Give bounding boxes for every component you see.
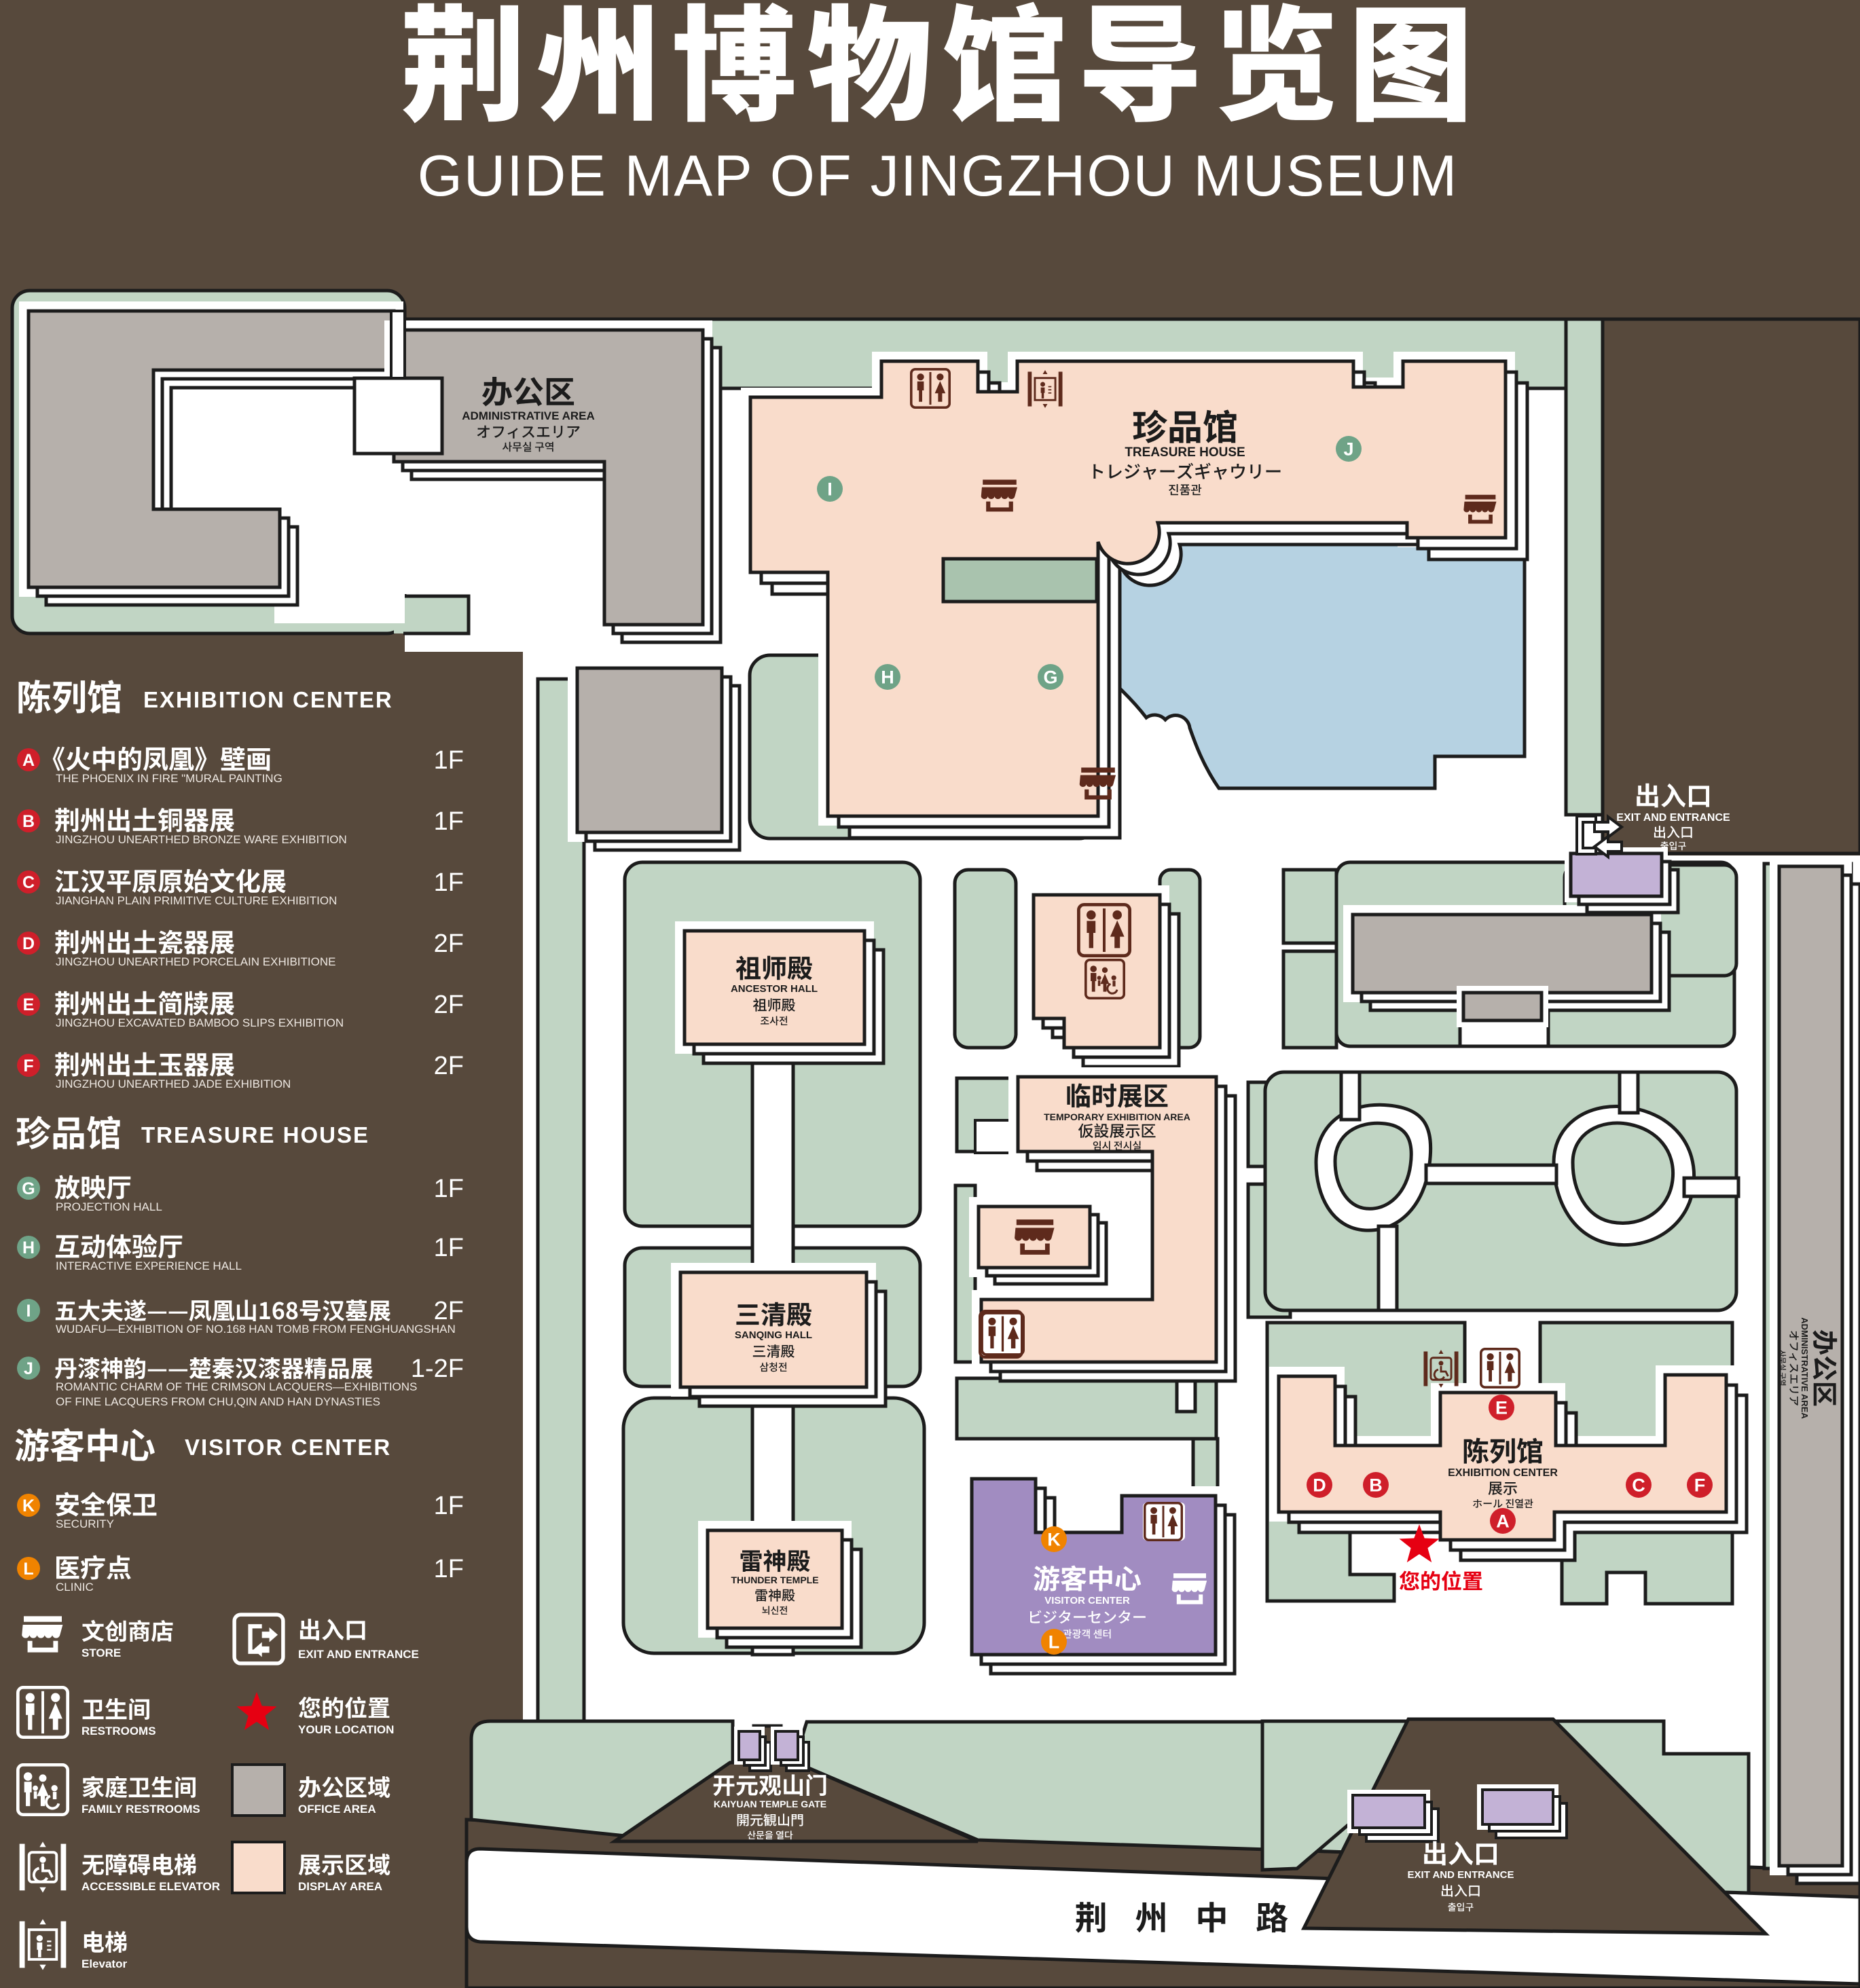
svg-text:1F: 1F [434,1234,464,1262]
svg-text:K: K [1047,1529,1061,1549]
svg-text:Elevator: Elevator [81,1957,127,1970]
svg-text:ANCESTOR HALL: ANCESTOR HALL [731,983,818,995]
svg-text:1F: 1F [434,1555,464,1583]
svg-text:TEMPORARY EXHIBITION AREA: TEMPORARY EXHIBITION AREA [1044,1111,1190,1122]
svg-text:2F: 2F [434,929,464,958]
svg-text:EXHIBITION CENTER: EXHIBITION CENTER [1448,1467,1558,1479]
svg-text:ACCESSIBLE ELEVATOR: ACCESSIBLE ELEVATOR [81,1880,220,1893]
svg-text:CLINIC: CLINIC [56,1581,94,1594]
svg-text:RESTROOMS: RESTROOMS [81,1725,156,1737]
svg-text:E: E [1495,1397,1508,1418]
svg-text:VISITOR CENTER: VISITOR CENTER [185,1435,391,1460]
svg-text:1-2F: 1-2F [411,1355,464,1383]
svg-text:J: J [24,1359,33,1378]
svg-text:THE PHOENIX IN FIRE "MURAL PAI: THE PHOENIX IN FIRE "MURAL PAINTING [56,772,282,785]
svg-text:E: E [23,995,35,1014]
svg-text:J: J [1343,439,1353,459]
svg-text:EXIT AND ENTRANCE: EXIT AND ENTRANCE [1408,1869,1514,1881]
svg-text:H: H [881,667,894,687]
svg-text:K: K [22,1496,35,1515]
svg-text:F: F [1694,1475,1706,1495]
svg-text:OF FINE LACQUERS FROM CHU,QIN: OF FINE LACQUERS FROM CHU,QIN AND HAN DY… [56,1395,380,1408]
svg-text:JINGZHOU UNEARTHED BRONZE WARE: JINGZHOU UNEARTHED BRONZE WARE EXHIBITIO… [56,833,347,846]
svg-text:1F: 1F [434,746,464,775]
svg-text:H: H [22,1238,35,1257]
svg-text:F: F [23,1056,33,1075]
svg-text:YOUR LOCATION: YOUR LOCATION [298,1723,394,1736]
svg-text:TREASURE HOUSE: TREASURE HOUSE [141,1122,369,1147]
svg-text:A: A [1496,1511,1510,1531]
svg-text:2F: 2F [434,991,464,1019]
svg-text:ADMINISTRATIVE AREA: ADMINISTRATIVE AREA [462,409,595,422]
svg-text:ROMANTIC CHARM OF THE CRIMSON: ROMANTIC CHARM OF THE CRIMSON LACQUERS—E… [56,1380,417,1393]
svg-text:G: G [1043,667,1057,687]
svg-text:INTERACTIVE EXPERIENCE HALL: INTERACTIVE EXPERIENCE HALL [56,1259,242,1272]
svg-text:B: B [1369,1475,1383,1495]
svg-text:JINGZHOU UNEARTHED PORCELAIN E: JINGZHOU UNEARTHED PORCELAIN EXHIBITIONE [56,955,335,968]
svg-text:JIANGHAN PLAIN PRIMITIVE CULTU: JIANGHAN PLAIN PRIMITIVE CULTURE EXHIBIT… [56,894,337,907]
svg-text:VISITOR CENTER: VISITOR CENTER [1044,1595,1130,1606]
svg-text:1F: 1F [434,807,464,836]
svg-text:D: D [1313,1475,1326,1495]
svg-text:1F: 1F [434,868,464,897]
svg-text:OFFICE AREA: OFFICE AREA [298,1803,376,1816]
svg-text:2F: 2F [434,1297,464,1325]
svg-text:EXHIBITION CENTER: EXHIBITION CENTER [143,687,393,712]
svg-text:ADMINISTRATIVE AREA: ADMINISTRATIVE AREA [1800,1317,1810,1419]
svg-text:G: G [22,1179,35,1198]
svg-text:STORE: STORE [81,1646,121,1659]
svg-text:JINGZHOU EXCAVATED BAMBOO SLIP: JINGZHOU EXCAVATED BAMBOO SLIPS EXHIBITI… [56,1016,344,1029]
svg-text:GUIDE MAP OF JINGZHOU MUSEUM: GUIDE MAP OF JINGZHOU MUSEUM [418,144,1459,208]
svg-text:1F: 1F [434,1492,464,1520]
svg-text:SANQING HALL: SANQING HALL [735,1329,812,1341]
svg-text:FAMILY RESTROOMS: FAMILY RESTROOMS [81,1803,200,1816]
svg-text:C: C [22,873,35,892]
svg-text:I: I [827,479,833,499]
svg-text:I: I [26,1302,31,1321]
svg-text:2F: 2F [434,1052,464,1080]
svg-text:TREASURE HOUSE: TREASURE HOUSE [1125,445,1245,460]
svg-text:EXIT AND ENTRANCE: EXIT AND ENTRANCE [298,1648,419,1661]
svg-text:EXIT AND ENTRANCE: EXIT AND ENTRANCE [1616,812,1730,824]
svg-text:PROJECTION HALL: PROJECTION HALL [56,1200,162,1213]
svg-text:SECURITY: SECURITY [56,1517,114,1530]
svg-text:WUDAFU—EXHIBITION OF NO.168 HA: WUDAFU—EXHIBITION OF NO.168 HAN TOMB FRO… [56,1323,456,1336]
svg-text:D: D [22,934,35,953]
svg-text:KAIYUAN TEMPLE GATE: KAIYUAN TEMPLE GATE [714,1799,826,1809]
svg-text:C: C [1632,1475,1645,1495]
svg-text:JINGZHOU UNEARTHED JADE EXHIBI: JINGZHOU UNEARTHED JADE EXHIBITION [56,1078,291,1090]
svg-text:DISPLAY AREA: DISPLAY AREA [298,1880,382,1893]
svg-text:A: A [22,751,35,770]
svg-text:1F: 1F [434,1175,464,1203]
svg-text:THUNDER TEMPLE: THUNDER TEMPLE [731,1575,818,1585]
svg-text:L: L [23,1560,33,1579]
svg-text:B: B [22,812,35,831]
svg-text:L: L [1048,1632,1060,1652]
